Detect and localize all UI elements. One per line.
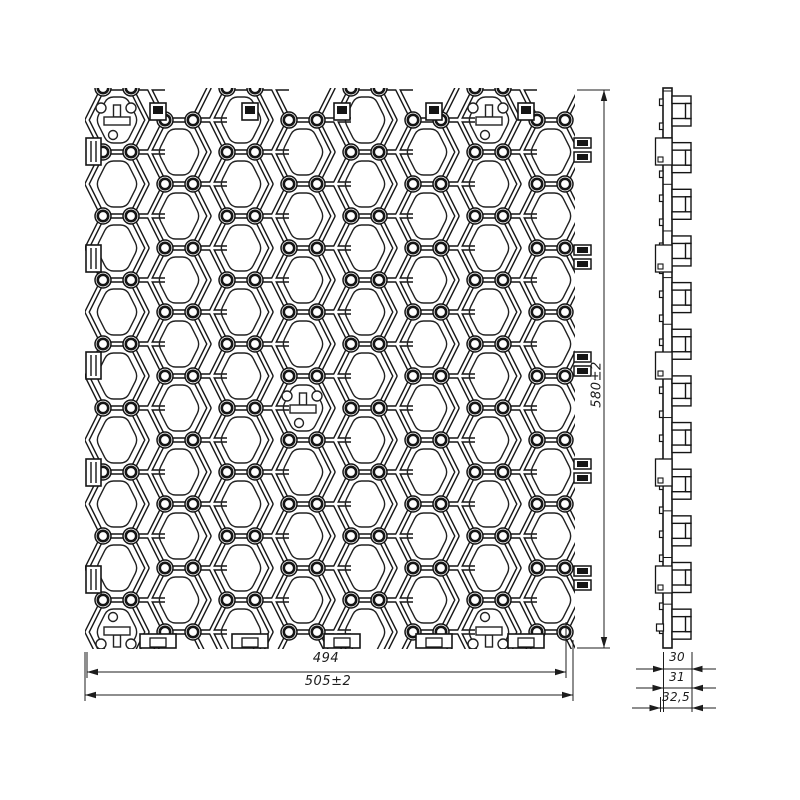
side-tooth xyxy=(672,258,691,266)
dim-arrow xyxy=(87,669,98,675)
side-tooth xyxy=(672,143,691,151)
dim-side-tooth-label: 30 xyxy=(657,650,697,664)
bottom-tab-inner xyxy=(242,638,258,647)
side-tooth xyxy=(672,445,691,453)
side-tooth-bridge xyxy=(686,104,692,119)
top-clip-tab xyxy=(429,106,439,114)
mold-hole xyxy=(109,613,118,622)
dim-side-total-label: 32,5 xyxy=(650,690,702,704)
side-tooth-bridge xyxy=(686,337,692,352)
top-clip-tab xyxy=(245,106,255,114)
mold-hole xyxy=(96,103,106,113)
t-mark-stem xyxy=(486,105,493,117)
t-mark-bar xyxy=(476,117,502,125)
side-nub xyxy=(660,171,664,178)
side-tooth xyxy=(672,538,691,546)
mold-hole xyxy=(312,391,322,401)
mold-hole xyxy=(481,131,490,140)
side-tooth xyxy=(672,189,691,197)
dim-arrow xyxy=(555,669,566,675)
side-tooth xyxy=(672,376,691,384)
mold-hole xyxy=(126,639,136,649)
side-tooth xyxy=(672,96,691,104)
top-clip-tab xyxy=(337,106,347,114)
side-tooth xyxy=(672,423,691,431)
side-tooth-bridge xyxy=(686,197,692,212)
mold-hole xyxy=(498,103,508,113)
side-tooth xyxy=(672,585,691,593)
dim-arrow xyxy=(85,692,96,698)
t-mark-stem xyxy=(486,635,493,647)
side-tooth-bridge xyxy=(686,617,692,632)
mold-hole xyxy=(468,103,478,113)
top-clip-tab xyxy=(521,106,531,114)
side-nub xyxy=(660,531,664,538)
side-tooth-bridge xyxy=(686,570,692,585)
side-tooth-bridge xyxy=(686,523,692,538)
mold-hole xyxy=(468,639,478,649)
t-mark-bar xyxy=(104,117,130,125)
t-mark-stem xyxy=(114,635,121,647)
left-clip xyxy=(86,459,101,486)
bottom-tab-inner xyxy=(426,638,442,647)
mold-hole xyxy=(126,103,136,113)
dim-arrow xyxy=(601,90,607,101)
left-clip xyxy=(86,352,101,379)
side-tooth-bridge xyxy=(686,477,692,492)
drawing-canvas: 494 505±2 580±2 30 31 32,5 xyxy=(0,0,800,800)
side-tooth-bridge xyxy=(686,243,692,258)
left-clip xyxy=(86,245,101,272)
dim-arrow xyxy=(650,705,661,711)
dim-height-label: 580±2 xyxy=(590,345,605,425)
t-mark-bar xyxy=(290,405,316,413)
front-view xyxy=(87,48,581,704)
side-nub xyxy=(660,99,664,106)
side-nub xyxy=(660,507,664,514)
dim-side-mid-label: 31 xyxy=(657,670,697,684)
side-tooth xyxy=(672,469,691,477)
left-clip xyxy=(86,566,101,593)
side-tooth xyxy=(672,329,691,337)
bottom-tab-inner xyxy=(334,638,350,647)
bottom-tab-inner xyxy=(518,638,534,647)
dim-width-inner-label: 494 xyxy=(286,651,366,666)
side-nub xyxy=(660,291,664,298)
dim-arrow xyxy=(562,692,573,698)
side-tooth xyxy=(672,212,691,220)
side-tooth xyxy=(672,563,691,571)
side-nub xyxy=(660,411,664,418)
side-nub xyxy=(660,315,664,322)
bottom-tab-inner xyxy=(150,638,166,647)
side-tooth xyxy=(672,516,691,524)
side-tooth xyxy=(672,492,691,500)
t-mark-bar xyxy=(476,627,502,635)
side-tooth xyxy=(672,236,691,244)
side-nub xyxy=(660,603,664,610)
side-nub xyxy=(660,195,664,202)
left-clip xyxy=(86,138,101,165)
side-view xyxy=(656,88,692,648)
side-tooth-bridge xyxy=(686,430,692,445)
mold-hole xyxy=(481,613,490,622)
side-detail xyxy=(657,624,664,631)
mold-hole xyxy=(498,639,508,649)
mold-hole xyxy=(295,419,304,428)
side-tooth xyxy=(672,305,691,313)
t-mark-bar xyxy=(104,627,130,635)
mold-hole xyxy=(282,391,292,401)
dim-width-outer-label: 505±2 xyxy=(278,674,378,689)
side-tooth xyxy=(672,119,691,127)
side-tooth xyxy=(672,352,691,360)
t-mark-stem xyxy=(300,393,307,405)
side-nub xyxy=(660,219,664,226)
top-clip-tab xyxy=(153,106,163,114)
mold-hole xyxy=(96,639,106,649)
side-tooth xyxy=(672,283,691,291)
side-tooth xyxy=(672,609,691,617)
side-tooth xyxy=(672,632,691,640)
dim-arrow xyxy=(692,705,703,711)
side-nub xyxy=(660,387,664,394)
side-tooth-bridge xyxy=(686,150,692,165)
dim-arrow xyxy=(601,637,607,648)
mold-hole xyxy=(109,131,118,140)
side-nub xyxy=(660,339,664,346)
side-nub xyxy=(660,555,664,562)
side-nub xyxy=(660,435,664,442)
t-mark-stem xyxy=(114,105,121,117)
side-tooth xyxy=(672,165,691,173)
side-tooth-bridge xyxy=(686,290,692,305)
side-tooth xyxy=(672,398,691,406)
side-nub xyxy=(660,123,664,130)
side-tooth-bridge xyxy=(686,383,692,398)
